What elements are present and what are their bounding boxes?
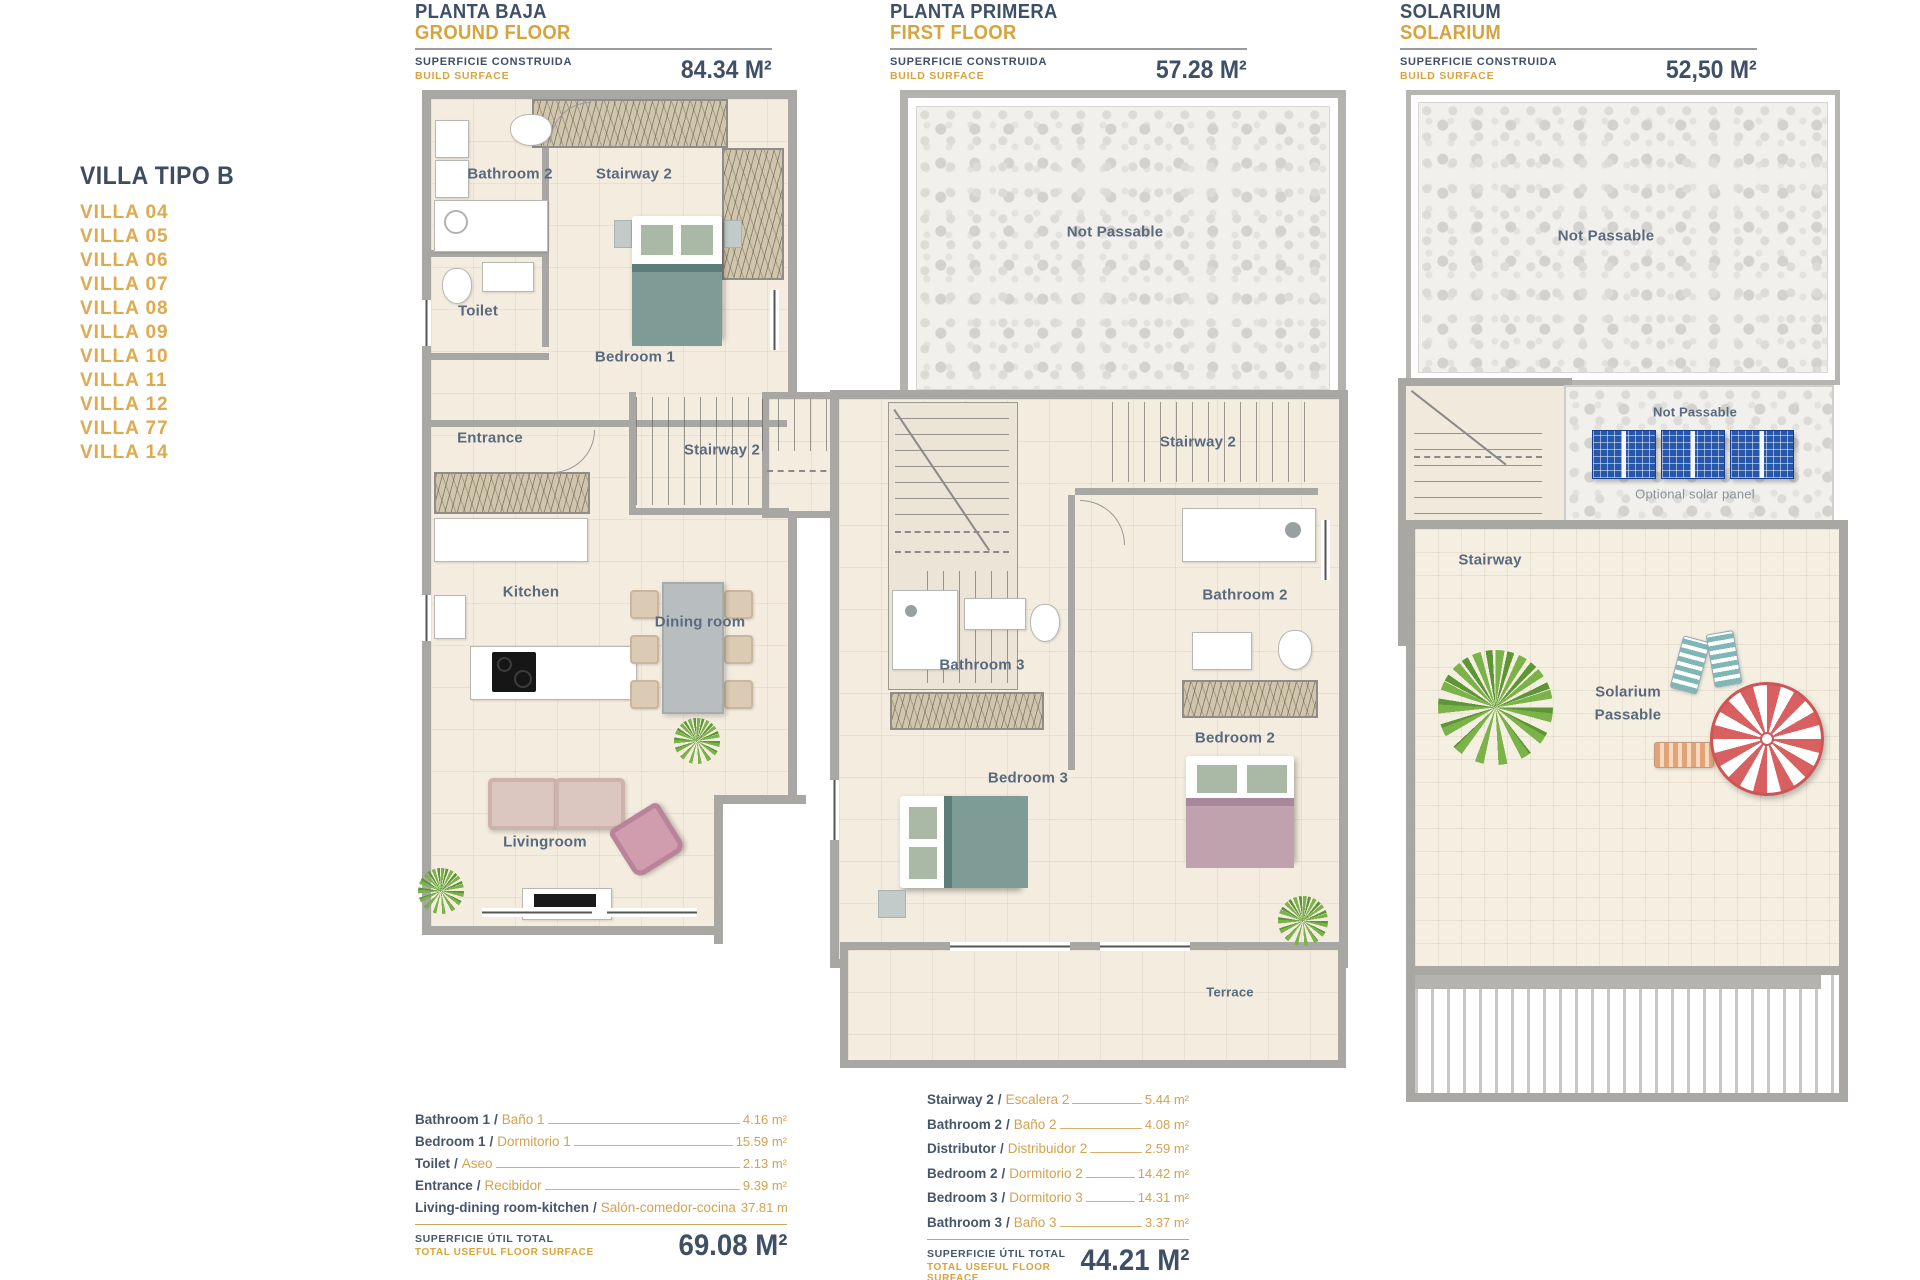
solar-panel-icon — [1661, 430, 1725, 479]
legend-row: Bedroom 1/Dormitorio 1 15.59 m² — [415, 1134, 787, 1149]
total-useful-surface-value: 44.21 M² — [1080, 1244, 1189, 1278]
bed-icon — [632, 216, 722, 338]
sink-icon — [435, 160, 469, 198]
nightstand-icon — [878, 890, 906, 918]
window-icon — [422, 595, 431, 641]
lounger-icon — [1654, 742, 1714, 768]
label-not-passable-panels: Not Passable — [1653, 405, 1737, 420]
header-divider — [890, 48, 1247, 50]
build-surface-value: 52,50 M² — [1666, 56, 1757, 85]
header-divider — [1400, 48, 1757, 50]
room-label-stairway2-mid: Stairway 2 — [684, 442, 760, 459]
nightstand-icon — [614, 220, 632, 248]
room-label-dining: Dining room — [655, 614, 746, 631]
legend-row: Bedroom 2/Dormitorio 2 14.42 m² — [927, 1166, 1189, 1181]
window-icon — [1100, 942, 1190, 951]
window-icon — [482, 908, 592, 917]
room-label-toilet: Toilet — [458, 303, 498, 320]
villa-list-item: VILLA 09 — [80, 321, 248, 345]
toilet-icon — [1030, 604, 1060, 642]
leader-line — [1090, 1152, 1142, 1153]
total-block: SUPERFICIE ÚTIL TOTAL TOTAL USEFUL FLOOR… — [927, 1239, 1189, 1280]
leader-line — [1072, 1103, 1142, 1104]
leader-line — [496, 1167, 740, 1168]
surface-label: SUPERFICIE CONSTRUIDA BUILD SURFACE — [890, 56, 1047, 82]
wall — [629, 392, 636, 508]
sink-icon — [964, 598, 1026, 630]
window-icon — [830, 780, 839, 840]
total-useful-surface-value: 69.08 M² — [678, 1229, 787, 1263]
kitchen-counter-icon — [434, 518, 588, 562]
villa-list-item: VILLA 14 — [80, 441, 248, 465]
plant-icon — [674, 718, 720, 764]
ground-floor-header: PLANTA BAJA GROUND FLOOR SUPERFICIE CONS… — [415, 2, 772, 85]
plant-icon — [418, 868, 464, 914]
plan-notch — [714, 795, 806, 944]
room-label-bathroom3: Bathroom 3 — [939, 657, 1024, 674]
total-label: SUPERFICIE ÚTIL TOTAL TOTAL USEFUL FLOOR… — [415, 1233, 594, 1258]
room-label-bedroom3: Bedroom 3 — [988, 770, 1068, 787]
build-surface-value: 57.28 M² — [1156, 56, 1247, 85]
room-label-bedroom1: Bedroom 1 — [595, 349, 675, 366]
leader-line — [1060, 1226, 1142, 1227]
room-label-stairway2: Stairway 2 — [1160, 434, 1236, 451]
toilet-icon — [1278, 630, 1312, 670]
closet-icon — [722, 148, 784, 280]
villa-list-item: VILLA 04 — [80, 201, 248, 225]
bed-icon — [900, 796, 1020, 888]
chair-icon — [724, 680, 753, 709]
first-floor-legend: Stairway 2/Escalera 2 5.44 m² Bathroom 2… — [927, 1092, 1189, 1280]
stairs-icon — [762, 399, 840, 451]
label-passable: Passable — [1595, 707, 1662, 724]
plan-title-en: GROUND FLOOR — [415, 23, 571, 44]
legend-row: Stairway 2/Escalera 2 5.44 m² — [927, 1092, 1189, 1107]
solarium-plan: Not Passable Stairway Not Passable Optio… — [1398, 90, 1830, 1090]
toilet-icon — [510, 114, 552, 146]
window-icon — [607, 908, 697, 917]
solarium-header: SOLARIUM SOLARIUM SUPERFICIE CONSTRUIDA … — [1400, 2, 1757, 85]
terrace-area — [840, 942, 1346, 1068]
plan-title-es: PLANTA BAJA — [415, 2, 547, 23]
tv-icon — [534, 894, 596, 907]
legend-row: Toilet/Aseo 2.13 m² — [415, 1156, 787, 1171]
bathtub-drain — [1285, 522, 1301, 538]
chair-icon — [630, 680, 659, 709]
legend-row: Bedroom 3/Dormitorio 3 14.31 m² — [927, 1190, 1189, 1205]
plan-title-es: SOLARIUM — [1400, 2, 1501, 23]
first-floor-header: PLANTA PRIMERA FIRST FLOOR SUPERFICIE CO… — [890, 2, 1247, 85]
floorplan-sheet: VILLA TIPO B VILLA 04 VILLA 05 VILLA 06 … — [0, 0, 1920, 1280]
leader-line — [574, 1145, 733, 1146]
sofa-icon — [555, 778, 625, 830]
surface-label: SUPERFICIE CONSTRUIDA BUILD SURFACE — [415, 56, 572, 82]
build-surface-value: 84.34 M² — [681, 56, 772, 85]
villa-list-item: VILLA 12 — [80, 393, 248, 417]
toilet-icon — [442, 268, 472, 304]
header-divider — [415, 48, 772, 50]
label-solarium: Solarium — [1595, 684, 1661, 701]
room-label-bedroom2: Bedroom 2 — [1195, 730, 1275, 747]
villa-list-item: VILLA 10 — [80, 345, 248, 369]
legend-row: Entrance/Recibidor 9.39 m² — [415, 1178, 787, 1193]
legend-row: Bathroom 3/Baño 3 3.37 m² — [927, 1215, 1189, 1230]
sink-icon — [1192, 632, 1252, 670]
wardrobe-icon — [434, 472, 590, 514]
ground-floor-legend: Bathroom 1/Baño 1 4.16 m² Bedroom 1/Dorm… — [415, 1112, 787, 1263]
villa-list-item: VILLA 07 — [80, 273, 248, 297]
chair-icon — [630, 635, 659, 664]
window-icon — [770, 290, 779, 350]
stove-icon — [492, 652, 536, 692]
nightstand-icon — [724, 220, 742, 248]
room-label-kitchen: Kitchen — [503, 584, 559, 601]
legend-row: Distributor/Distribuidor 2 2.59 m² — [927, 1141, 1189, 1156]
surface-label: SUPERFICIE CONSTRUIDA BUILD SURFACE — [1400, 56, 1557, 82]
villa-list-item: VILLA 05 — [80, 225, 248, 249]
room-label-stairway: Stairway — [1458, 552, 1521, 569]
ground-floor-plan: Bathroom 2 Stairway 2 Toilet Bedroom 1 E… — [422, 90, 797, 935]
total-label: SUPERFICIE ÚTIL TOTAL TOTAL USEFUL FLOOR… — [927, 1248, 1071, 1280]
window-icon — [422, 300, 431, 346]
palm-plant-icon — [1438, 650, 1553, 765]
room-label-bathroom2: Bathroom 2 — [467, 166, 552, 183]
sofa-icon — [488, 778, 558, 830]
label-optional-solar-panel: Optional solar panel — [1635, 487, 1755, 502]
plant-icon — [1278, 896, 1328, 946]
solar-panel-icon — [1592, 430, 1656, 479]
room-label-stairway2: Stairway 2 — [596, 166, 672, 183]
sheet-title: VILLA TIPO B — [80, 162, 234, 191]
label-not-passable-top: Not Passable — [1558, 228, 1655, 245]
plan-title-en: FIRST FLOOR — [890, 23, 1017, 44]
leader-line — [1086, 1201, 1135, 1202]
plan-title-en: SOLARIUM — [1400, 23, 1501, 44]
bed-icon — [1186, 756, 1294, 860]
plan-title-es: PLANTA PRIMERA — [890, 2, 1058, 23]
room-label-terrace: Terrace — [1206, 985, 1253, 1000]
legend-row: Bathroom 2/Baño 2 4.08 m² — [927, 1117, 1189, 1132]
roof-area — [900, 90, 1346, 406]
villa-list-item: VILLA 06 — [80, 249, 248, 273]
leader-line — [545, 1189, 740, 1190]
wardrobe-icon — [890, 692, 1044, 730]
wall — [431, 353, 549, 360]
stairs-dash — [767, 470, 837, 472]
gravel-texture — [916, 106, 1330, 390]
bathtub-drain — [444, 210, 468, 234]
sidebar: VILLA TIPO B VILLA 04 VILLA 05 VILLA 06 … — [80, 162, 248, 465]
wall — [629, 508, 789, 515]
window-icon — [1321, 520, 1330, 580]
parasol-icon — [1710, 682, 1824, 796]
villa-list-item: VILLA 08 — [80, 297, 248, 321]
leader-line — [1086, 1177, 1135, 1178]
villa-list: VILLA 04 VILLA 05 VILLA 06 VILLA 07 VILL… — [80, 201, 248, 465]
sink-icon — [482, 262, 534, 292]
window-icon — [950, 942, 1070, 951]
pergola-beam — [1415, 975, 1821, 989]
sink-icon — [435, 120, 469, 158]
room-label-bathroom2: Bathroom 2 — [1202, 587, 1287, 604]
wardrobe-icon — [1182, 680, 1318, 718]
leader-line — [548, 1123, 740, 1124]
chair-icon — [724, 635, 753, 664]
villa-list-item: VILLA 77 — [80, 417, 248, 441]
fridge-icon — [434, 595, 466, 639]
first-floor-plan: Not Passable — [830, 90, 1330, 1052]
leader-line — [1060, 1128, 1142, 1129]
wall — [1068, 495, 1075, 770]
room-label-livingroom: Livingroom — [503, 834, 587, 851]
wall — [1075, 488, 1318, 495]
villa-list-item: VILLA 11 — [80, 369, 248, 393]
dining-table-icon — [662, 582, 724, 714]
room-label-entrance: Entrance — [457, 430, 523, 447]
total-block: SUPERFICIE ÚTIL TOTAL TOTAL USEFUL FLOOR… — [415, 1224, 787, 1263]
legend-row: Living-dining room-kitchen/Salón-comedor… — [415, 1200, 787, 1215]
legend-row: Bathroom 1/Baño 1 4.16 m² — [415, 1112, 787, 1127]
solar-panel-icon — [1730, 430, 1794, 479]
label-not-passable: Not Passable — [1067, 224, 1164, 241]
